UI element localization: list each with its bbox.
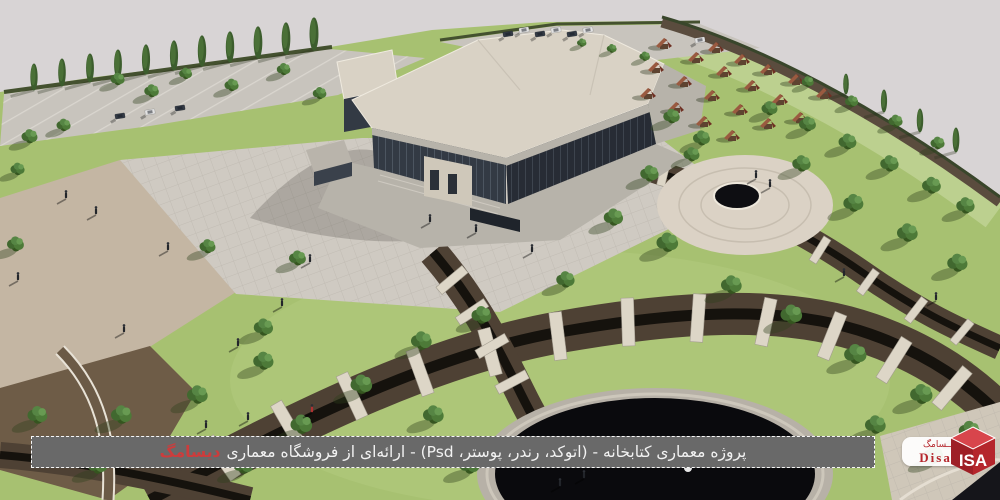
small-pond [714, 183, 760, 209]
brand-logo: دیـــسامگ Disamag ISA [900, 424, 1000, 482]
screenshot-root: پروژه معماری کتابخانه - (اتوکد، رندر، پو… [0, 0, 1000, 500]
caption-bar: پروژه معماری کتابخانه - (اتوکد، رندر، پو… [31, 436, 875, 468]
isa-cube-icon: ISA [946, 424, 1000, 480]
caption-brand: دیسامگ [160, 437, 221, 467]
architectural-render [0, 0, 1000, 500]
stone-slab [621, 298, 635, 346]
cube-letters: ISA [959, 451, 987, 470]
fountain-plaza [657, 155, 833, 255]
caption-text: پروژه معماری کتابخانه - (اتوکد، رندر، پو… [226, 437, 746, 467]
